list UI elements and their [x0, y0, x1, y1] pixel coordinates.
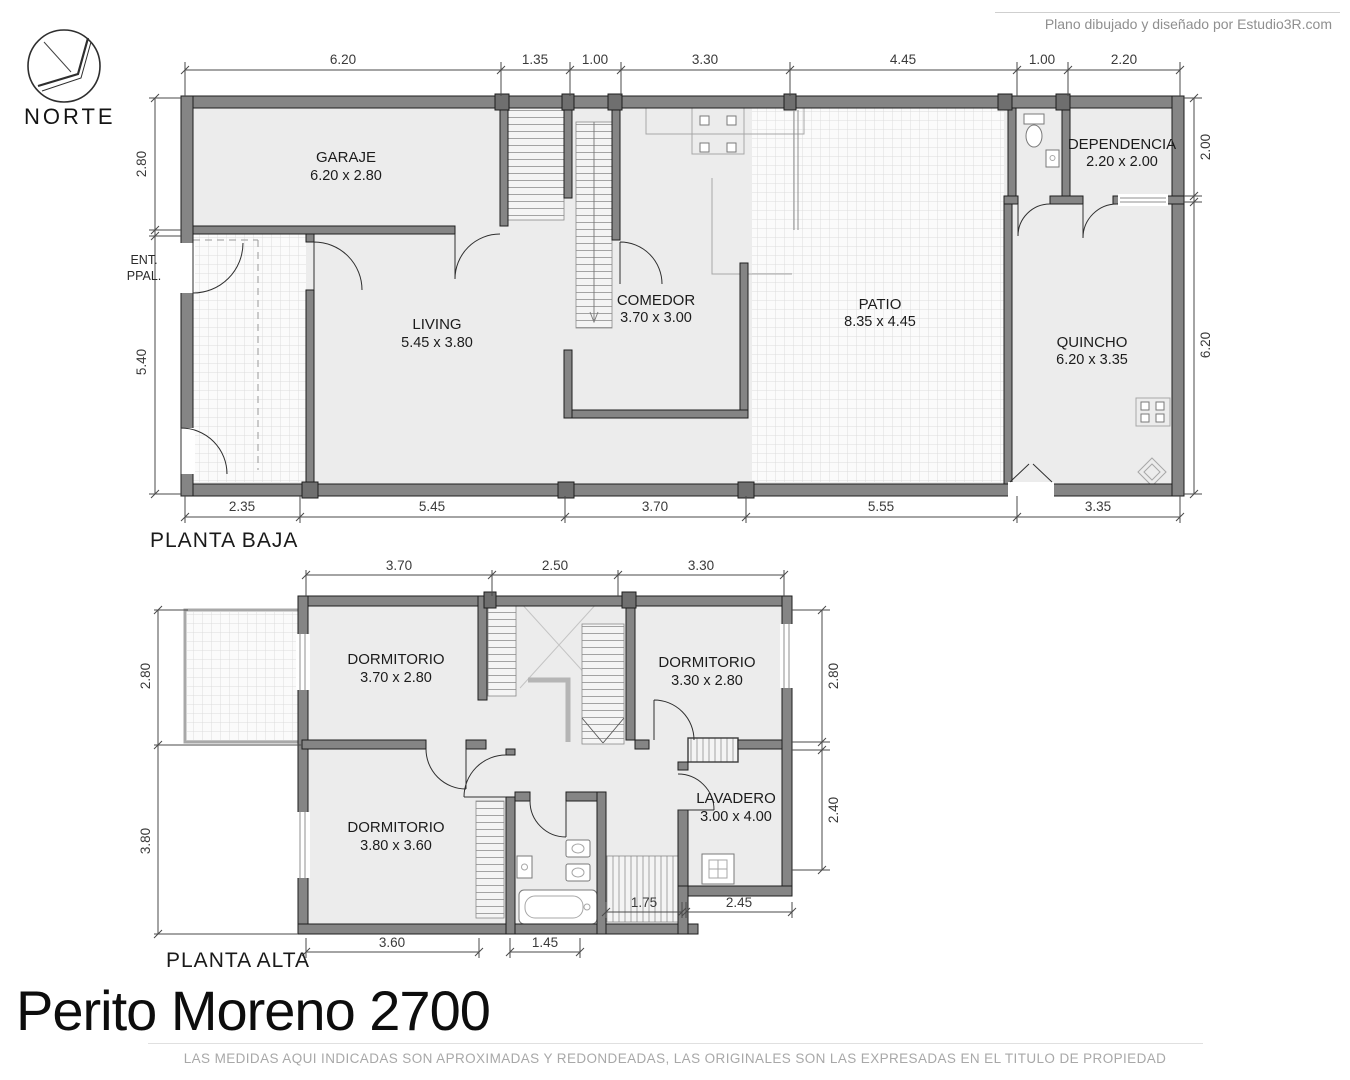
dim-label: 2.45 [726, 895, 752, 910]
dim-label: 1.00 [1029, 52, 1055, 67]
room-size: 8.35 x 4.45 [844, 314, 916, 330]
room-size: 3.70 x 2.80 [360, 670, 432, 686]
ground-floor-plan: 6.20 1.35 1.00 3.30 4.45 1.00 2.20 2.35 … [100, 30, 1240, 535]
dim-label: 2.35 [229, 499, 255, 514]
railing-icon [688, 738, 738, 762]
patio-tiles [752, 108, 1004, 482]
entry-tiles [193, 234, 306, 482]
dimension-lines-right: 2.00 6.20 [1184, 94, 1213, 498]
dim-label: 3.60 [379, 935, 405, 950]
dim-label: 2.20 [1111, 52, 1137, 67]
dimension-lines-left: 2.80 5.40 [134, 94, 181, 498]
dim-label: 2.40 [826, 797, 841, 823]
room-name: GARAJE [316, 149, 376, 166]
room-size: 3.70 x 3.00 [620, 310, 692, 326]
dim-label: 2.80 [138, 663, 153, 689]
bathtub-icon [519, 890, 597, 924]
entrance-label: ENT. PPAL. [127, 253, 162, 283]
room-name: COMEDOR [617, 292, 696, 309]
disclaimer-text: LAS MEDIDAS AQUI INDICADAS SON APROXIMAD… [0, 1051, 1350, 1066]
toilet-icon [1024, 114, 1044, 147]
dim-label: 2.80 [134, 151, 149, 177]
entrance-line1: ENT. [130, 253, 157, 267]
upper-floor-title: PLANTA ALTA [166, 949, 310, 973]
dim-label: 1.00 [582, 52, 608, 67]
dim-label: 6.20 [1198, 332, 1213, 358]
dim-label: 5.55 [868, 499, 894, 514]
header-rule [995, 12, 1340, 13]
room-name: QUINCHO [1057, 334, 1128, 351]
dimension-lines-right: 2.80 2.40 [792, 606, 841, 874]
upper-floor-plan: 3.70 2.50 3.30 2.80 3.80 2.80 2.40 3.60 … [130, 560, 1030, 965]
room-size: 3.00 x 4.00 [700, 809, 772, 825]
dim-label: 3.70 [642, 499, 668, 514]
room-name: DORMITORIO [347, 651, 444, 668]
balcony [185, 610, 298, 742]
washer-icon [702, 854, 734, 884]
sink-icon [1046, 150, 1059, 167]
dim-label: 5.40 [134, 349, 149, 375]
dim-label: 5.45 [419, 499, 445, 514]
dim-label: 6.20 [330, 52, 356, 67]
room-name: LIVING [412, 316, 461, 333]
closet-icon [476, 801, 504, 918]
dimension-lines-top: 3.70 2.50 3.30 [302, 560, 788, 596]
north-compass-icon [18, 22, 113, 112]
dim-label: 2.50 [542, 560, 568, 573]
dimension-lines-top: 6.20 1.35 1.00 3.30 4.45 1.00 2.20 [181, 52, 1184, 96]
dim-label: 1.35 [522, 52, 548, 67]
entrance-line2: PPAL. [127, 269, 162, 283]
dimension-lines-bottom: 2.35 5.45 3.70 5.55 3.35 [181, 496, 1184, 523]
dim-label: 3.30 [692, 52, 718, 67]
room-size: 6.20 x 2.80 [310, 168, 382, 184]
ground-floor-title: PLANTA BAJA [150, 529, 298, 553]
dim-label: 4.45 [890, 52, 916, 67]
room-name: DEPENDENCIA [1068, 136, 1176, 153]
room-name: DORMITORIO [658, 654, 755, 671]
room-name: DORMITORIO [347, 819, 444, 836]
room-name: LAVADERO [696, 790, 775, 807]
dim-label: 3.35 [1085, 499, 1111, 514]
sink-icon [517, 856, 532, 878]
dim-label: 3.30 [688, 560, 714, 573]
dim-label: 2.80 [826, 663, 841, 689]
room-size: 5.45 x 3.80 [401, 335, 473, 351]
dim-label: 1.45 [532, 935, 558, 950]
dim-label: 3.80 [138, 828, 153, 854]
floor-plan-page: Plano dibujado y diseñado por Estudio3R.… [0, 0, 1350, 1080]
footer-rule [148, 1043, 1203, 1044]
room-size: 2.20 x 2.00 [1086, 154, 1158, 170]
page-title: Perito Moreno 2700 [16, 978, 490, 1043]
room-size: 6.20 x 3.35 [1056, 352, 1128, 368]
dim-label: 1.75 [631, 895, 657, 910]
dim-label: 2.00 [1198, 134, 1213, 160]
dim-label: 3.70 [386, 560, 412, 573]
room-size: 3.80 x 3.60 [360, 838, 432, 854]
room-size: 3.30 x 2.80 [671, 673, 743, 689]
room-name: PATIO [859, 296, 902, 313]
